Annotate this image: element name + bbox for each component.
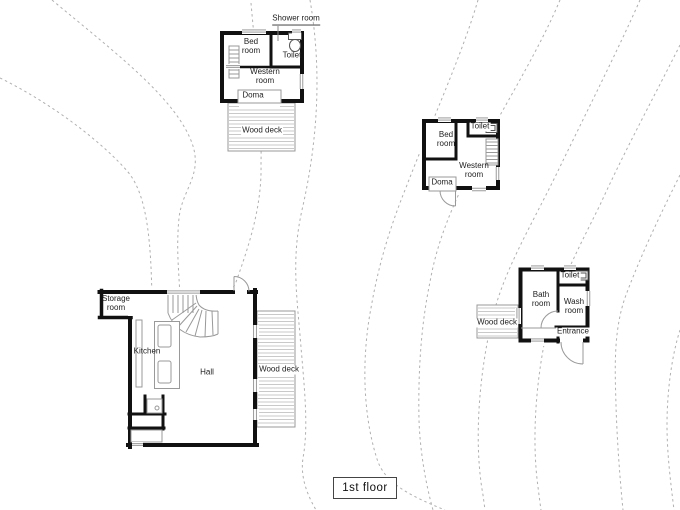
label-toilet-a: Toilet bbox=[283, 52, 302, 61]
label-entrance: Entrance bbox=[556, 328, 590, 337]
label-kitchen: Kitchen bbox=[134, 348, 161, 357]
label-toilet-b: Toilet bbox=[470, 123, 491, 132]
label-bed-room-a: Bed room bbox=[234, 38, 268, 56]
label-shower-room: Shower room bbox=[272, 15, 320, 26]
label-toilet-bath: Toilet bbox=[560, 272, 581, 281]
closet-box bbox=[131, 430, 162, 442]
toilet-fixture-icon bbox=[289, 33, 302, 52]
label-bed-room-b: Bed room bbox=[431, 131, 461, 149]
floor-label: 1st floor bbox=[342, 482, 387, 494]
label-doma-a: Doma bbox=[242, 92, 263, 101]
entrance-opening bbox=[560, 337, 583, 345]
label-wood-deck-a: Wood deck bbox=[241, 127, 283, 136]
label-western-room-a: Western room bbox=[243, 68, 287, 86]
label-wash-room: Wash room bbox=[558, 298, 590, 316]
wc-fixture bbox=[147, 399, 162, 413]
label-storage-room: Storage room bbox=[93, 295, 139, 313]
label-doma-b: Doma bbox=[431, 179, 452, 188]
plan-drawing bbox=[0, 0, 680, 510]
label-western-room-b: Western room bbox=[452, 162, 496, 180]
floor-label-box: 1st floor bbox=[333, 477, 397, 499]
label-bath-room: Bath room bbox=[526, 291, 556, 309]
floor-plan-canvas: Shower room Bed room Toilet Western room… bbox=[0, 0, 680, 510]
label-wood-deck-bath: Wood deck bbox=[476, 319, 518, 328]
label-wood-deck-main: Wood deck bbox=[258, 366, 300, 375]
label-hall: Hall bbox=[200, 369, 214, 378]
